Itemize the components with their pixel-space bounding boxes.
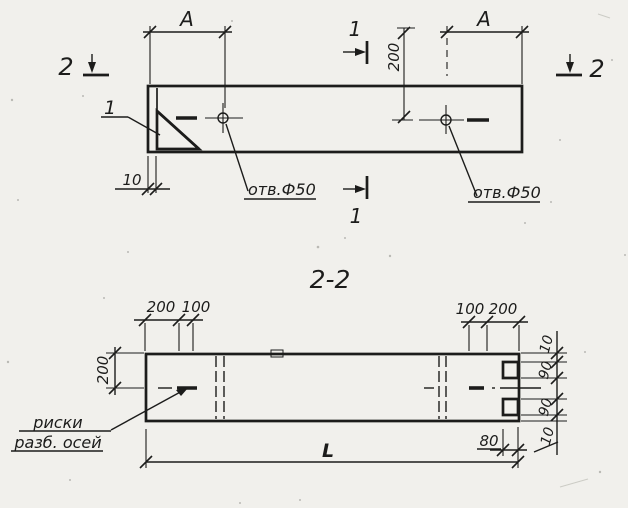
notch-top bbox=[503, 362, 518, 378]
dim-a-right: А bbox=[440, 7, 529, 84]
dim-200-label: 200 bbox=[489, 300, 518, 318]
hole-label-text: отв.Ф50 bbox=[248, 180, 316, 199]
detail-mark-leader bbox=[128, 117, 160, 135]
section-arrowhead bbox=[566, 62, 574, 73]
scanned-drawing-sheet: 1 А А 200 bbox=[0, 0, 628, 508]
note-line-2: разб. осей bbox=[13, 433, 101, 452]
notch-bottom bbox=[503, 399, 518, 415]
note-line-1: риски bbox=[32, 413, 82, 432]
dim-80-label: 80 bbox=[479, 432, 498, 450]
section-2-label: 2 bbox=[58, 53, 73, 81]
dim-10-label: 10 bbox=[537, 334, 557, 355]
section-view: 2-2 bbox=[11, 265, 567, 468]
section-1-label: 1 bbox=[350, 204, 363, 228]
hole-label-text: отв.Ф50 bbox=[473, 183, 541, 202]
section-mark-1-top: 1 bbox=[343, 17, 367, 64]
section-2-label: 2 bbox=[589, 55, 604, 83]
dims-top-right: 100 200 bbox=[456, 300, 528, 351]
section-mark-2-right: 2 bbox=[556, 54, 605, 83]
scan-mark bbox=[598, 14, 610, 18]
section-mark-1-bottom: 1 bbox=[343, 176, 367, 228]
leader-line bbox=[226, 124, 248, 191]
scan-mark bbox=[560, 479, 588, 487]
drawing-canvas: 1 А А 200 bbox=[0, 0, 628, 508]
dim-100-label: 100 bbox=[456, 300, 485, 318]
dim-100-label: 100 bbox=[182, 298, 211, 316]
hidden-hole-lines bbox=[216, 356, 446, 419]
section-1-label: 1 bbox=[349, 17, 362, 41]
beam-outline bbox=[148, 86, 522, 152]
section-view-title: 2-2 bbox=[310, 265, 351, 294]
dim-a-right-label: А bbox=[475, 7, 491, 31]
hole-right bbox=[392, 105, 489, 134]
section-arrowhead bbox=[88, 62, 96, 73]
dims-right-stack: 10 90 90 10 bbox=[521, 331, 567, 455]
dim-200-label: 200 bbox=[147, 298, 176, 316]
detail-mark-1: 1 bbox=[101, 97, 160, 135]
hole-label-right: отв.Ф50 bbox=[449, 126, 541, 202]
detail-mark-label: 1 bbox=[104, 97, 116, 119]
dim-a-left-label: А bbox=[178, 7, 194, 31]
section-arrowhead bbox=[355, 185, 366, 193]
beam-outline-section bbox=[146, 350, 519, 421]
dims-top-left: 200 100 bbox=[134, 298, 210, 351]
beam-rect bbox=[146, 354, 519, 421]
section-arrowhead bbox=[355, 48, 366, 56]
dim-10-label: 10 bbox=[122, 171, 141, 189]
note-leader bbox=[111, 390, 184, 430]
beam-rect bbox=[148, 86, 522, 152]
dim-200-label: 200 bbox=[385, 43, 403, 72]
top-view: 1 А А 200 bbox=[58, 7, 604, 228]
dim-200-vertical: 200 bbox=[385, 27, 415, 123]
dim-l-label: L bbox=[322, 440, 334, 462]
hole-left bbox=[176, 103, 243, 133]
section-mark-2-left: 2 bbox=[58, 53, 109, 81]
dim-200-label: 200 bbox=[94, 356, 112, 385]
hole-label-left: отв.Ф50 bbox=[226, 124, 316, 199]
dim-length-l: L bbox=[140, 429, 524, 468]
dim-10-lip: 10 bbox=[115, 156, 170, 195]
